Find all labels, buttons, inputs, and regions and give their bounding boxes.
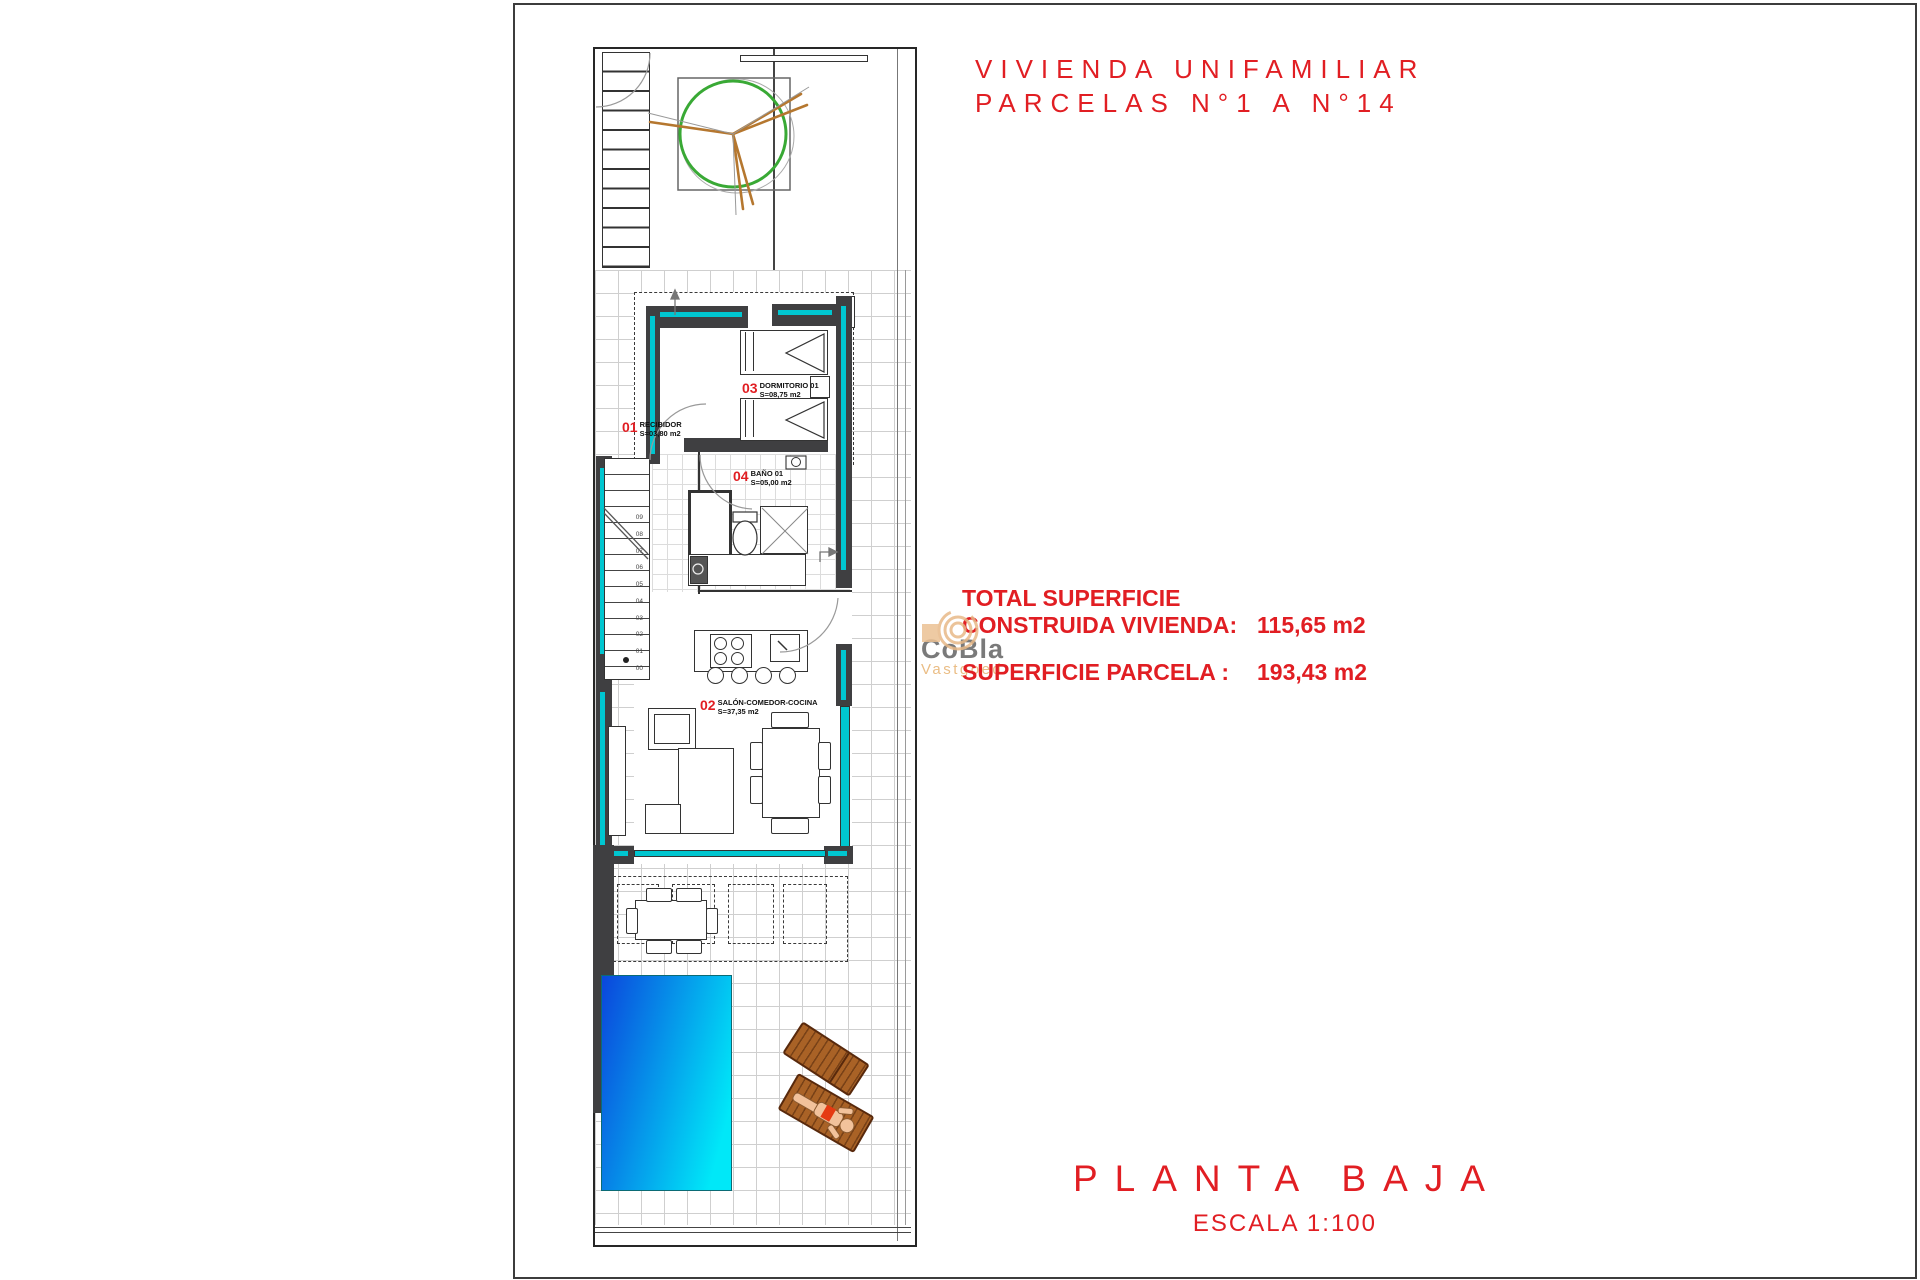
room-label-salon: 02 SALÓN-COMEDOR-COCINA S=37,35 m2 — [700, 699, 818, 716]
summary-label: CONSTRUIDA VIVIENDA: — [962, 612, 1237, 638]
shower-cross — [762, 508, 808, 554]
drawing-title: VIVIENDA UNIFAMILIAR PARCELAS N°1 A N°14 — [975, 52, 1375, 120]
room-number: 02 — [700, 699, 716, 712]
tree-branch-shadows — [648, 87, 809, 215]
summary-label: SUPERFICIE PARCELA : — [962, 659, 1229, 685]
plan-scale: ESCALA 1:100 — [1073, 1210, 1377, 1238]
room-number: 03 — [742, 382, 758, 395]
room-area: S=05,00 m2 — [751, 478, 792, 487]
plan-name: PLANTA BAJA — [1073, 1158, 1502, 1200]
room-name-area: BAÑO 01 S=05,00 m2 — [751, 470, 792, 487]
summary-row-parcela: SUPERFICIE PARCELA : — [962, 659, 1229, 686]
door-swing-arc — [780, 598, 838, 652]
summary-row-construida: CONSTRUIDA VIVIENDA: — [962, 612, 1237, 639]
room-name-area: DORMITORIO 01 S=08,75 m2 — [760, 382, 819, 399]
door-swing-arc — [596, 53, 650, 107]
island-faucet-line — [778, 641, 787, 650]
title-line-2: PARCELAS N°1 A N°14 — [975, 86, 1375, 120]
stair-break-line — [604, 508, 648, 559]
room-number: 04 — [733, 470, 749, 483]
room-area: S=37,35 m2 — [718, 707, 759, 716]
title-line-1: VIVIENDA UNIFAMILIAR — [975, 52, 1375, 86]
counter-sink-bowl — [693, 564, 703, 574]
summary-value-parcela: 193,43 m2 — [1257, 659, 1367, 686]
watermark-logo-icon — [920, 608, 1000, 654]
summary-value-construida: 115,65 m2 — [1257, 612, 1366, 639]
room-number: 01 — [622, 421, 638, 434]
room-label-dormitorio: 03 DORMITORIO 01 S=08,75 m2 — [742, 382, 819, 399]
room-area: S=08,75 m2 — [760, 390, 801, 399]
room-area: S=03,80 m2 — [640, 429, 681, 438]
plan-linework — [593, 47, 913, 1243]
room-name-area: RECIBIDOR S=03,80 m2 — [640, 421, 682, 438]
room-label-bano: 04 BAÑO 01 S=05,00 m2 — [733, 470, 792, 487]
bed-fold-triangle — [786, 334, 824, 372]
room-name-area: SALÓN-COMEDOR-COCINA S=37,35 m2 — [718, 699, 818, 716]
room-label-recibidor: 01 RECIBIDOR S=03,80 m2 — [622, 421, 682, 438]
floor-plan-sheet: 00 01 02 03 04 05 06 07 08 09 — [0, 0, 1920, 1280]
bed-fold-triangle — [786, 402, 824, 438]
toilet-icon — [733, 521, 757, 555]
